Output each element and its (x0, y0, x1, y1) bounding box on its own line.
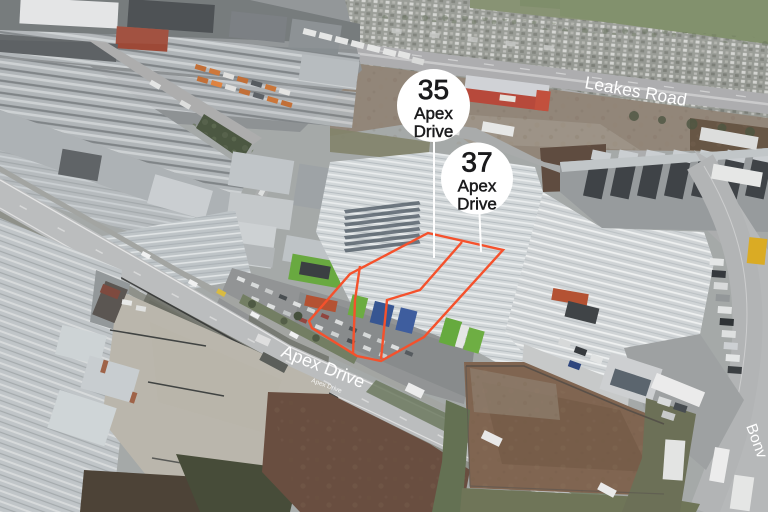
svg-text:Apex: Apex (458, 177, 497, 196)
svg-text:37: 37 (461, 147, 492, 178)
svg-text:Drive: Drive (457, 195, 497, 214)
svg-text:35: 35 (418, 74, 449, 105)
svg-text:Drive: Drive (414, 122, 454, 141)
svg-text:Apex: Apex (414, 104, 453, 123)
